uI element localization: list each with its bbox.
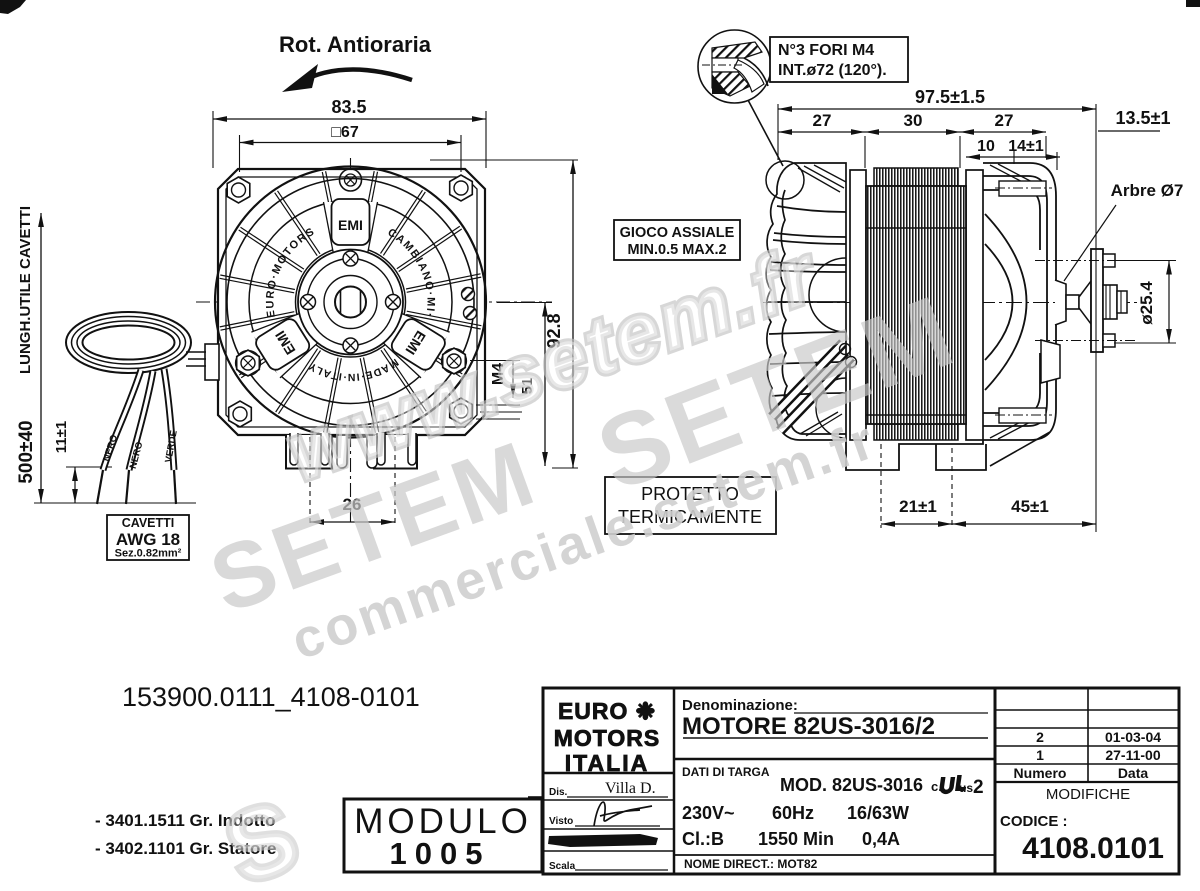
svg-text:INT.ø72 (120°).: INT.ø72 (120°).: [778, 62, 887, 79]
svg-text:Rot. Antioraria: Rot. Antioraria: [279, 32, 432, 57]
svg-text:AWG 18: AWG 18: [116, 530, 180, 549]
svg-text:16/63W: 16/63W: [847, 803, 909, 823]
svg-text:01-03-04: 01-03-04: [1105, 729, 1161, 745]
svg-text:2: 2: [1036, 729, 1044, 745]
svg-text:us: us: [959, 781, 973, 795]
svg-text:45±1: 45±1: [1011, 497, 1049, 516]
svg-text:11±1: 11±1: [53, 421, 70, 453]
svg-text:2: 2: [973, 777, 984, 798]
svg-text:CAVETTI: CAVETTI: [122, 516, 175, 530]
svg-text:EURO ❉: EURO ❉: [558, 698, 656, 724]
svg-text:Arbre Ø7: Arbre Ø7: [1111, 181, 1184, 200]
svg-text:LUNGH.UTILE CAVETTI: LUNGH.UTILE CAVETTI: [17, 206, 34, 374]
svg-text:1550 Min: 1550 Min: [758, 829, 834, 849]
svg-text:DATI DI TARGA: DATI DI TARGA: [682, 765, 770, 779]
svg-text:10: 10: [977, 138, 995, 155]
svg-text:500±40: 500±40: [16, 420, 37, 483]
svg-text:1: 1: [1036, 747, 1044, 763]
svg-text:MOTORS: MOTORS: [554, 725, 661, 751]
svg-text:21±1: 21±1: [899, 497, 937, 516]
svg-text:Sez.0.82mm²: Sez.0.82mm²: [115, 548, 182, 560]
svg-text:153900.0111_4108-0101: 153900.0111_4108-0101: [122, 682, 420, 712]
svg-text:□67: □67: [331, 124, 359, 141]
svg-text:Dis.: Dis.: [549, 787, 568, 798]
svg-text:EMI: EMI: [338, 217, 363, 233]
svg-text:60Hz: 60Hz: [772, 803, 814, 823]
svg-text:27: 27: [995, 111, 1014, 130]
svg-text:30: 30: [904, 111, 923, 130]
svg-text:27-11-00: 27-11-00: [1105, 747, 1160, 763]
svg-text:Data: Data: [1118, 765, 1149, 781]
svg-text:97.5±1.5: 97.5±1.5: [915, 87, 985, 107]
svg-text:ITALIA: ITALIA: [565, 750, 649, 776]
svg-text:Denominazione:: Denominazione:: [682, 697, 798, 714]
svg-text:N°3 FORI M4: N°3 FORI M4: [778, 42, 874, 59]
svg-text:Cl.:B: Cl.:B: [682, 829, 724, 849]
svg-text:83.5: 83.5: [331, 97, 366, 117]
svg-text:MODIFICHE: MODIFICHE: [1046, 786, 1130, 803]
svg-text:MOTORE 82US-3016/2: MOTORE 82US-3016/2: [682, 713, 935, 740]
svg-text:1005: 1005: [390, 836, 491, 871]
svg-text:27: 27: [813, 111, 832, 130]
svg-text:4108.0101: 4108.0101: [1022, 832, 1164, 865]
svg-text:230V~: 230V~: [682, 803, 735, 823]
svg-text:13.5±1: 13.5±1: [1116, 108, 1171, 128]
svg-text:MIN.0.5 MAX.2: MIN.0.5 MAX.2: [627, 242, 726, 258]
svg-text:Villa D.: Villa D.: [605, 780, 656, 797]
svg-text:Scala: Scala: [549, 861, 576, 872]
svg-text:ø25.4: ø25.4: [1137, 281, 1156, 325]
svg-text:0,4A: 0,4A: [862, 829, 900, 849]
svg-text:Numero: Numero: [1014, 765, 1067, 781]
svg-text:Visto: Visto: [549, 816, 573, 827]
svg-text:CODICE :: CODICE :: [1000, 813, 1068, 830]
svg-text:MOD. 82US-3016: MOD. 82US-3016: [780, 775, 923, 795]
svg-text:GIOCO ASSIALE: GIOCO ASSIALE: [620, 225, 735, 241]
svg-text:NOME DIRECT.: MOT82: NOME DIRECT.: MOT82: [684, 857, 818, 871]
